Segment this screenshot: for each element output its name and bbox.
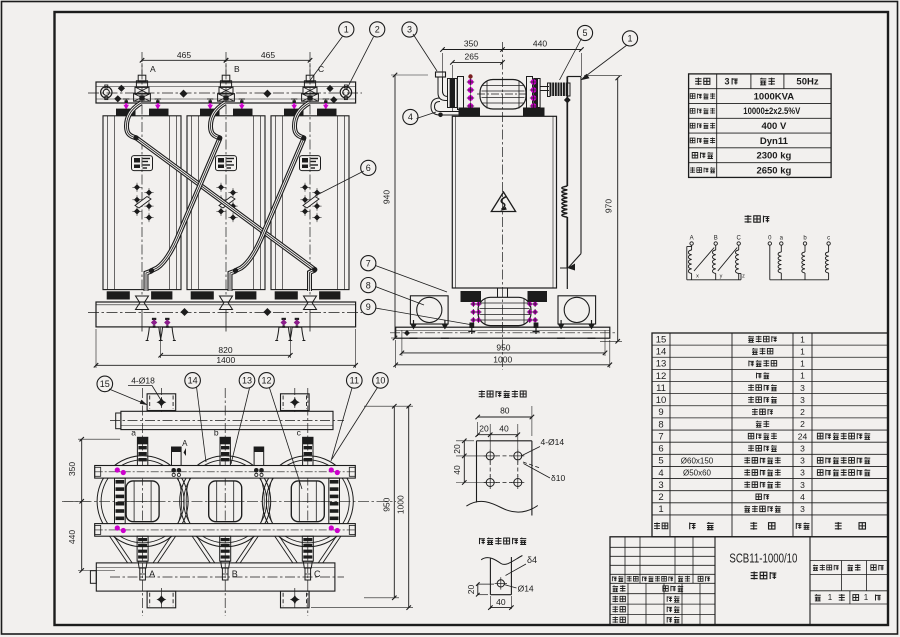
svg-text:5: 5: [658, 456, 663, 467]
svg-text:A: A: [690, 236, 694, 242]
svg-text:265: 265: [465, 52, 479, 62]
svg-text:C: C: [314, 569, 321, 579]
svg-text:1: 1: [627, 34, 632, 44]
svg-text:B: B: [232, 569, 238, 579]
svg-text:40: 40: [452, 465, 462, 475]
svg-text:820: 820: [218, 345, 232, 355]
svg-text:Ø14: Ø14: [518, 584, 534, 594]
svg-text:y: y: [720, 274, 723, 280]
svg-text:9: 9: [658, 407, 663, 418]
svg-text:2: 2: [375, 25, 380, 35]
svg-text:Ø60x150: Ø60x150: [681, 456, 714, 465]
svg-text:2300 kg: 2300 kg: [756, 151, 791, 162]
svg-text:465: 465: [177, 50, 191, 60]
svg-text:13: 13: [242, 376, 252, 386]
svg-text:8: 8: [658, 419, 663, 430]
svg-text:11: 11: [656, 383, 666, 394]
svg-text:3: 3: [800, 443, 805, 453]
svg-text:A: A: [150, 64, 156, 74]
svg-text:350: 350: [67, 462, 77, 476]
svg-text:3: 3: [800, 456, 805, 466]
svg-text:3: 3: [407, 25, 412, 35]
svg-text:3: 3: [724, 76, 729, 86]
svg-text:3: 3: [800, 504, 805, 514]
svg-text:x: x: [696, 274, 699, 280]
svg-text:3: 3: [658, 480, 663, 491]
svg-text:C: C: [737, 236, 742, 242]
svg-text:1: 1: [828, 593, 833, 602]
svg-text:6: 6: [366, 163, 371, 173]
svg-text:12: 12: [656, 371, 667, 382]
svg-text:20: 20: [479, 424, 489, 434]
svg-text:1000: 1000: [493, 355, 512, 365]
svg-text:4-Ø18: 4-Ø18: [131, 376, 155, 386]
svg-text:465: 465: [261, 50, 275, 60]
svg-text:4-Ø14: 4-Ø14: [541, 437, 565, 447]
svg-text:2: 2: [658, 492, 663, 503]
svg-text:400 V: 400 V: [761, 121, 786, 132]
svg-text:b: b: [214, 428, 219, 438]
svg-text:1: 1: [658, 504, 663, 515]
svg-text:350: 350: [464, 39, 478, 49]
svg-text:9: 9: [366, 302, 371, 312]
svg-text:14: 14: [656, 346, 667, 357]
svg-text:2: 2: [800, 419, 805, 429]
svg-text:80: 80: [500, 406, 510, 416]
svg-text:3: 3: [800, 468, 805, 478]
svg-text:Dyn11: Dyn11: [760, 136, 789, 147]
svg-text:4: 4: [658, 468, 663, 479]
svg-text:5: 5: [582, 28, 587, 38]
svg-text:c: c: [827, 236, 830, 242]
svg-text:δ10: δ10: [551, 473, 565, 483]
svg-text:15: 15: [656, 334, 667, 345]
svg-text:1: 1: [344, 25, 349, 35]
svg-text:40: 40: [496, 597, 506, 607]
svg-text:14: 14: [188, 376, 198, 386]
svg-text:50Hz: 50Hz: [796, 76, 818, 87]
svg-text:1: 1: [800, 371, 805, 381]
svg-text:A: A: [149, 569, 155, 579]
svg-text:1000: 1000: [396, 495, 406, 514]
svg-text:1000KVA: 1000KVA: [754, 91, 795, 102]
svg-text:11: 11: [350, 376, 359, 386]
svg-text:950: 950: [496, 343, 510, 353]
svg-text:3: 3: [800, 480, 805, 490]
svg-text:440: 440: [533, 39, 547, 49]
svg-text:940: 940: [382, 190, 392, 204]
svg-text:B: B: [234, 64, 240, 74]
svg-text:δ4: δ4: [527, 555, 537, 565]
svg-text:z: z: [742, 274, 745, 280]
svg-text:15: 15: [100, 379, 110, 389]
svg-text:B: B: [714, 236, 718, 242]
svg-text:6: 6: [658, 444, 663, 455]
svg-text:Ø50x60: Ø50x60: [683, 468, 712, 477]
svg-text:4: 4: [800, 492, 805, 502]
svg-text:950: 950: [382, 497, 392, 511]
svg-text:7: 7: [658, 431, 663, 442]
svg-text:1: 1: [800, 334, 805, 344]
svg-text:3: 3: [800, 383, 805, 393]
svg-text:1: 1: [800, 346, 805, 356]
svg-text:8: 8: [366, 280, 371, 290]
svg-text:20: 20: [466, 585, 476, 595]
svg-text:12: 12: [261, 376, 271, 386]
svg-text:2650 kg: 2650 kg: [756, 165, 791, 176]
svg-text:20: 20: [452, 444, 462, 454]
svg-text:1400: 1400: [216, 355, 235, 365]
svg-text:1: 1: [864, 593, 869, 602]
svg-text:7: 7: [366, 258, 371, 268]
svg-text:970: 970: [604, 199, 614, 213]
svg-text:4: 4: [408, 112, 413, 122]
svg-text:40: 40: [499, 424, 509, 434]
svg-text:2: 2: [800, 407, 805, 417]
svg-text:3: 3: [800, 395, 805, 405]
svg-text:SCB11-1000/10: SCB11-1000/10: [729, 552, 797, 566]
svg-text:c: c: [297, 428, 302, 438]
svg-text:10: 10: [375, 376, 385, 386]
svg-text:a: a: [131, 428, 136, 438]
svg-text:10000±2x2.5%V: 10000±2x2.5%V: [743, 106, 800, 116]
svg-text:24: 24: [798, 431, 808, 441]
svg-text:13: 13: [656, 359, 667, 370]
svg-text:10: 10: [656, 395, 667, 406]
svg-text:440: 440: [67, 530, 77, 544]
svg-text:A: A: [182, 439, 188, 448]
svg-text:1: 1: [800, 359, 805, 369]
